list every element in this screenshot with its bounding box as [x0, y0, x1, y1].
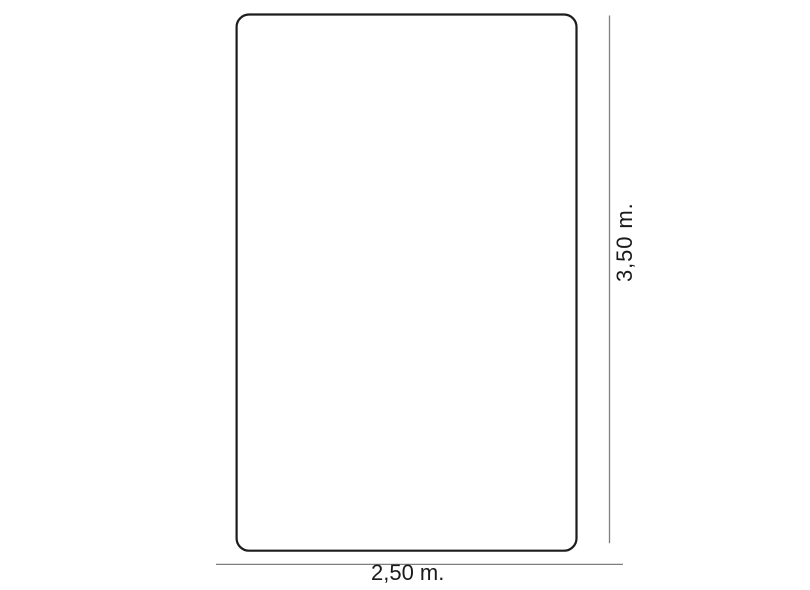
svg-text:2,50 m.: 2,50 m. — [371, 560, 444, 585]
svg-text:3,50 m.: 3,50 m. — [612, 202, 637, 282]
